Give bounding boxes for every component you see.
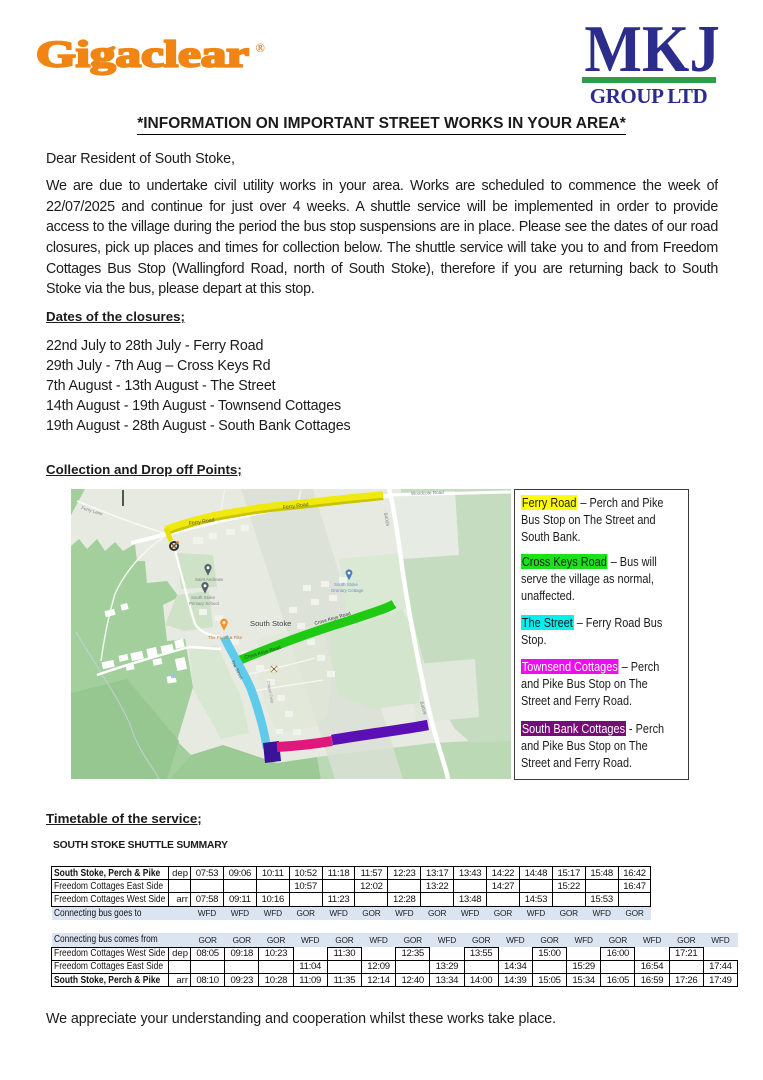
svg-text:South Stoke: South Stoke — [250, 619, 291, 628]
svg-text:®: ® — [256, 41, 265, 55]
svg-text:Granary Cottage: Granary Cottage — [331, 588, 364, 593]
svg-text:The Perch & Pike: The Perch & Pike — [208, 635, 243, 640]
svg-text:South Stoke: South Stoke — [191, 595, 215, 600]
svg-text:South Stoke: South Stoke — [334, 582, 358, 587]
svg-text:Primary School: Primary School — [189, 601, 219, 606]
svg-text:Gigaclear: Gigaclear — [36, 34, 249, 75]
svg-text:Saint Andrews: Saint Andrews — [195, 577, 224, 582]
